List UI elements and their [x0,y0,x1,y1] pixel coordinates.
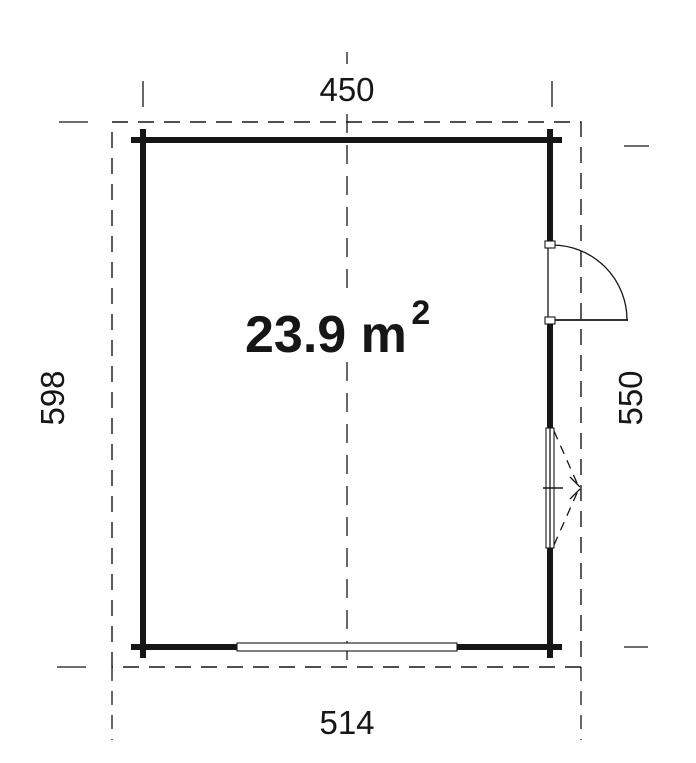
garage-door-opening [237,643,457,651]
dimension-label-top: 450 [319,71,374,108]
window-opening-dash-lower [554,493,577,545]
entrance-door [545,241,628,324]
dimension-label-bottom: 514 [319,704,374,741]
floor-plan-drawing: 450 598 550 514 23.9 m 2 [0,0,696,763]
area-value: 23.9 m [245,306,407,364]
area-superscript: 2 [411,294,430,332]
window [543,428,580,548]
door-frame-bottom [545,317,555,324]
dimension-label-left: 598 [34,370,71,425]
floor-plan-canvas: 450 598 550 514 23.9 m 2 [0,0,696,763]
window-opening-dash-upper [554,431,577,483]
window-opening-chevron [570,477,580,499]
dimension-label-right: 550 [612,370,649,425]
door-swing-arc [552,245,627,320]
door-frame-top [545,241,555,248]
